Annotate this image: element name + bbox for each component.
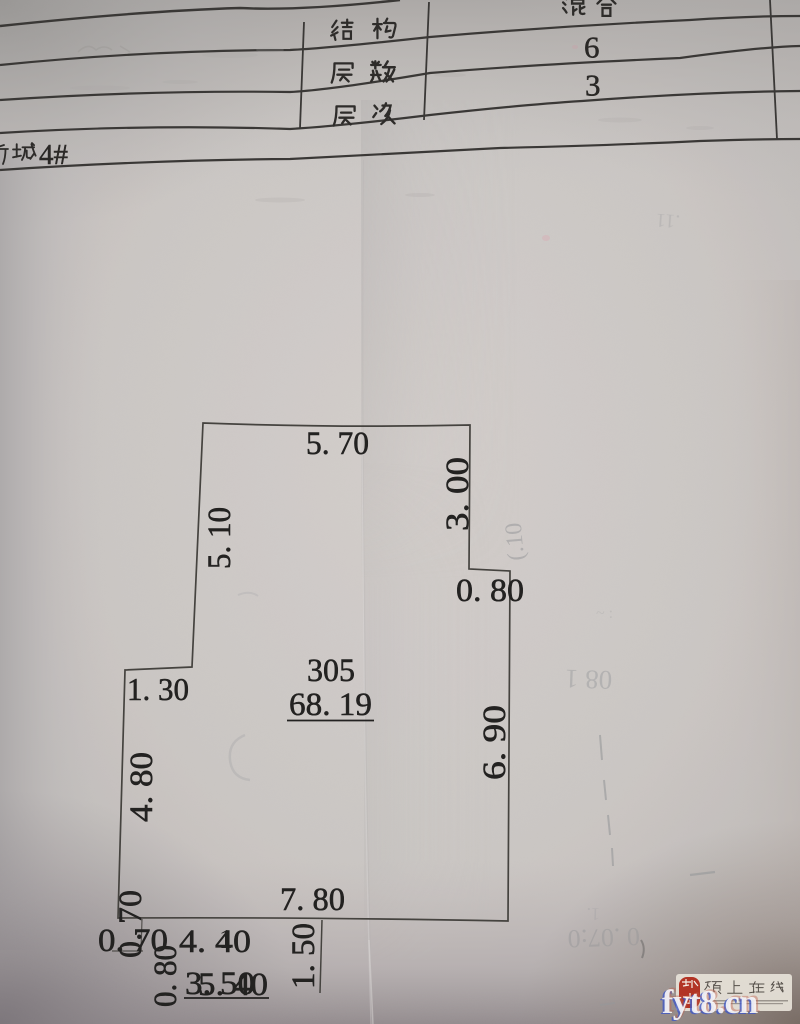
svg-text:0. 80: 0. 80 bbox=[456, 573, 524, 609]
svg-text:1. 50: 1. 50 bbox=[286, 923, 322, 989]
svg-text:.11: .11 bbox=[655, 209, 681, 233]
svg-text:~ :: ~ : bbox=[596, 605, 613, 622]
svg-text:4#: 4# bbox=[39, 139, 68, 171]
svg-text:fyt8.cn: fyt8.cn bbox=[662, 984, 758, 1021]
svg-text:68. 19: 68. 19 bbox=[289, 687, 372, 723]
svg-text:1. 30: 1. 30 bbox=[127, 671, 189, 707]
svg-text:0 .07:0: 0 .07:0 bbox=[567, 922, 640, 954]
svg-text:1.: 1. bbox=[586, 904, 600, 924]
svg-text:0. 70: 0. 70 bbox=[113, 890, 149, 958]
svg-text:4. 80: 4. 80 bbox=[124, 752, 160, 822]
svg-text:5. 70: 5. 70 bbox=[306, 426, 369, 462]
svg-text:305: 305 bbox=[307, 653, 355, 689]
svg-text:6: 6 bbox=[584, 30, 600, 65]
svg-text:3: 3 bbox=[585, 68, 601, 103]
svg-text:3. 00: 3. 00 bbox=[440, 457, 476, 531]
svg-text:08 1: 08 1 bbox=[564, 664, 612, 696]
svg-text:4. 40: 4. 40 bbox=[179, 924, 251, 960]
svg-text:1: 1 bbox=[219, 924, 233, 954]
svg-text:6. 90: 6. 90 bbox=[477, 705, 513, 780]
svg-text:5. 10: 5. 10 bbox=[202, 507, 238, 569]
svg-text:(.10: (.10 bbox=[501, 522, 530, 562]
svg-text:7. 80: 7. 80 bbox=[280, 882, 345, 918]
